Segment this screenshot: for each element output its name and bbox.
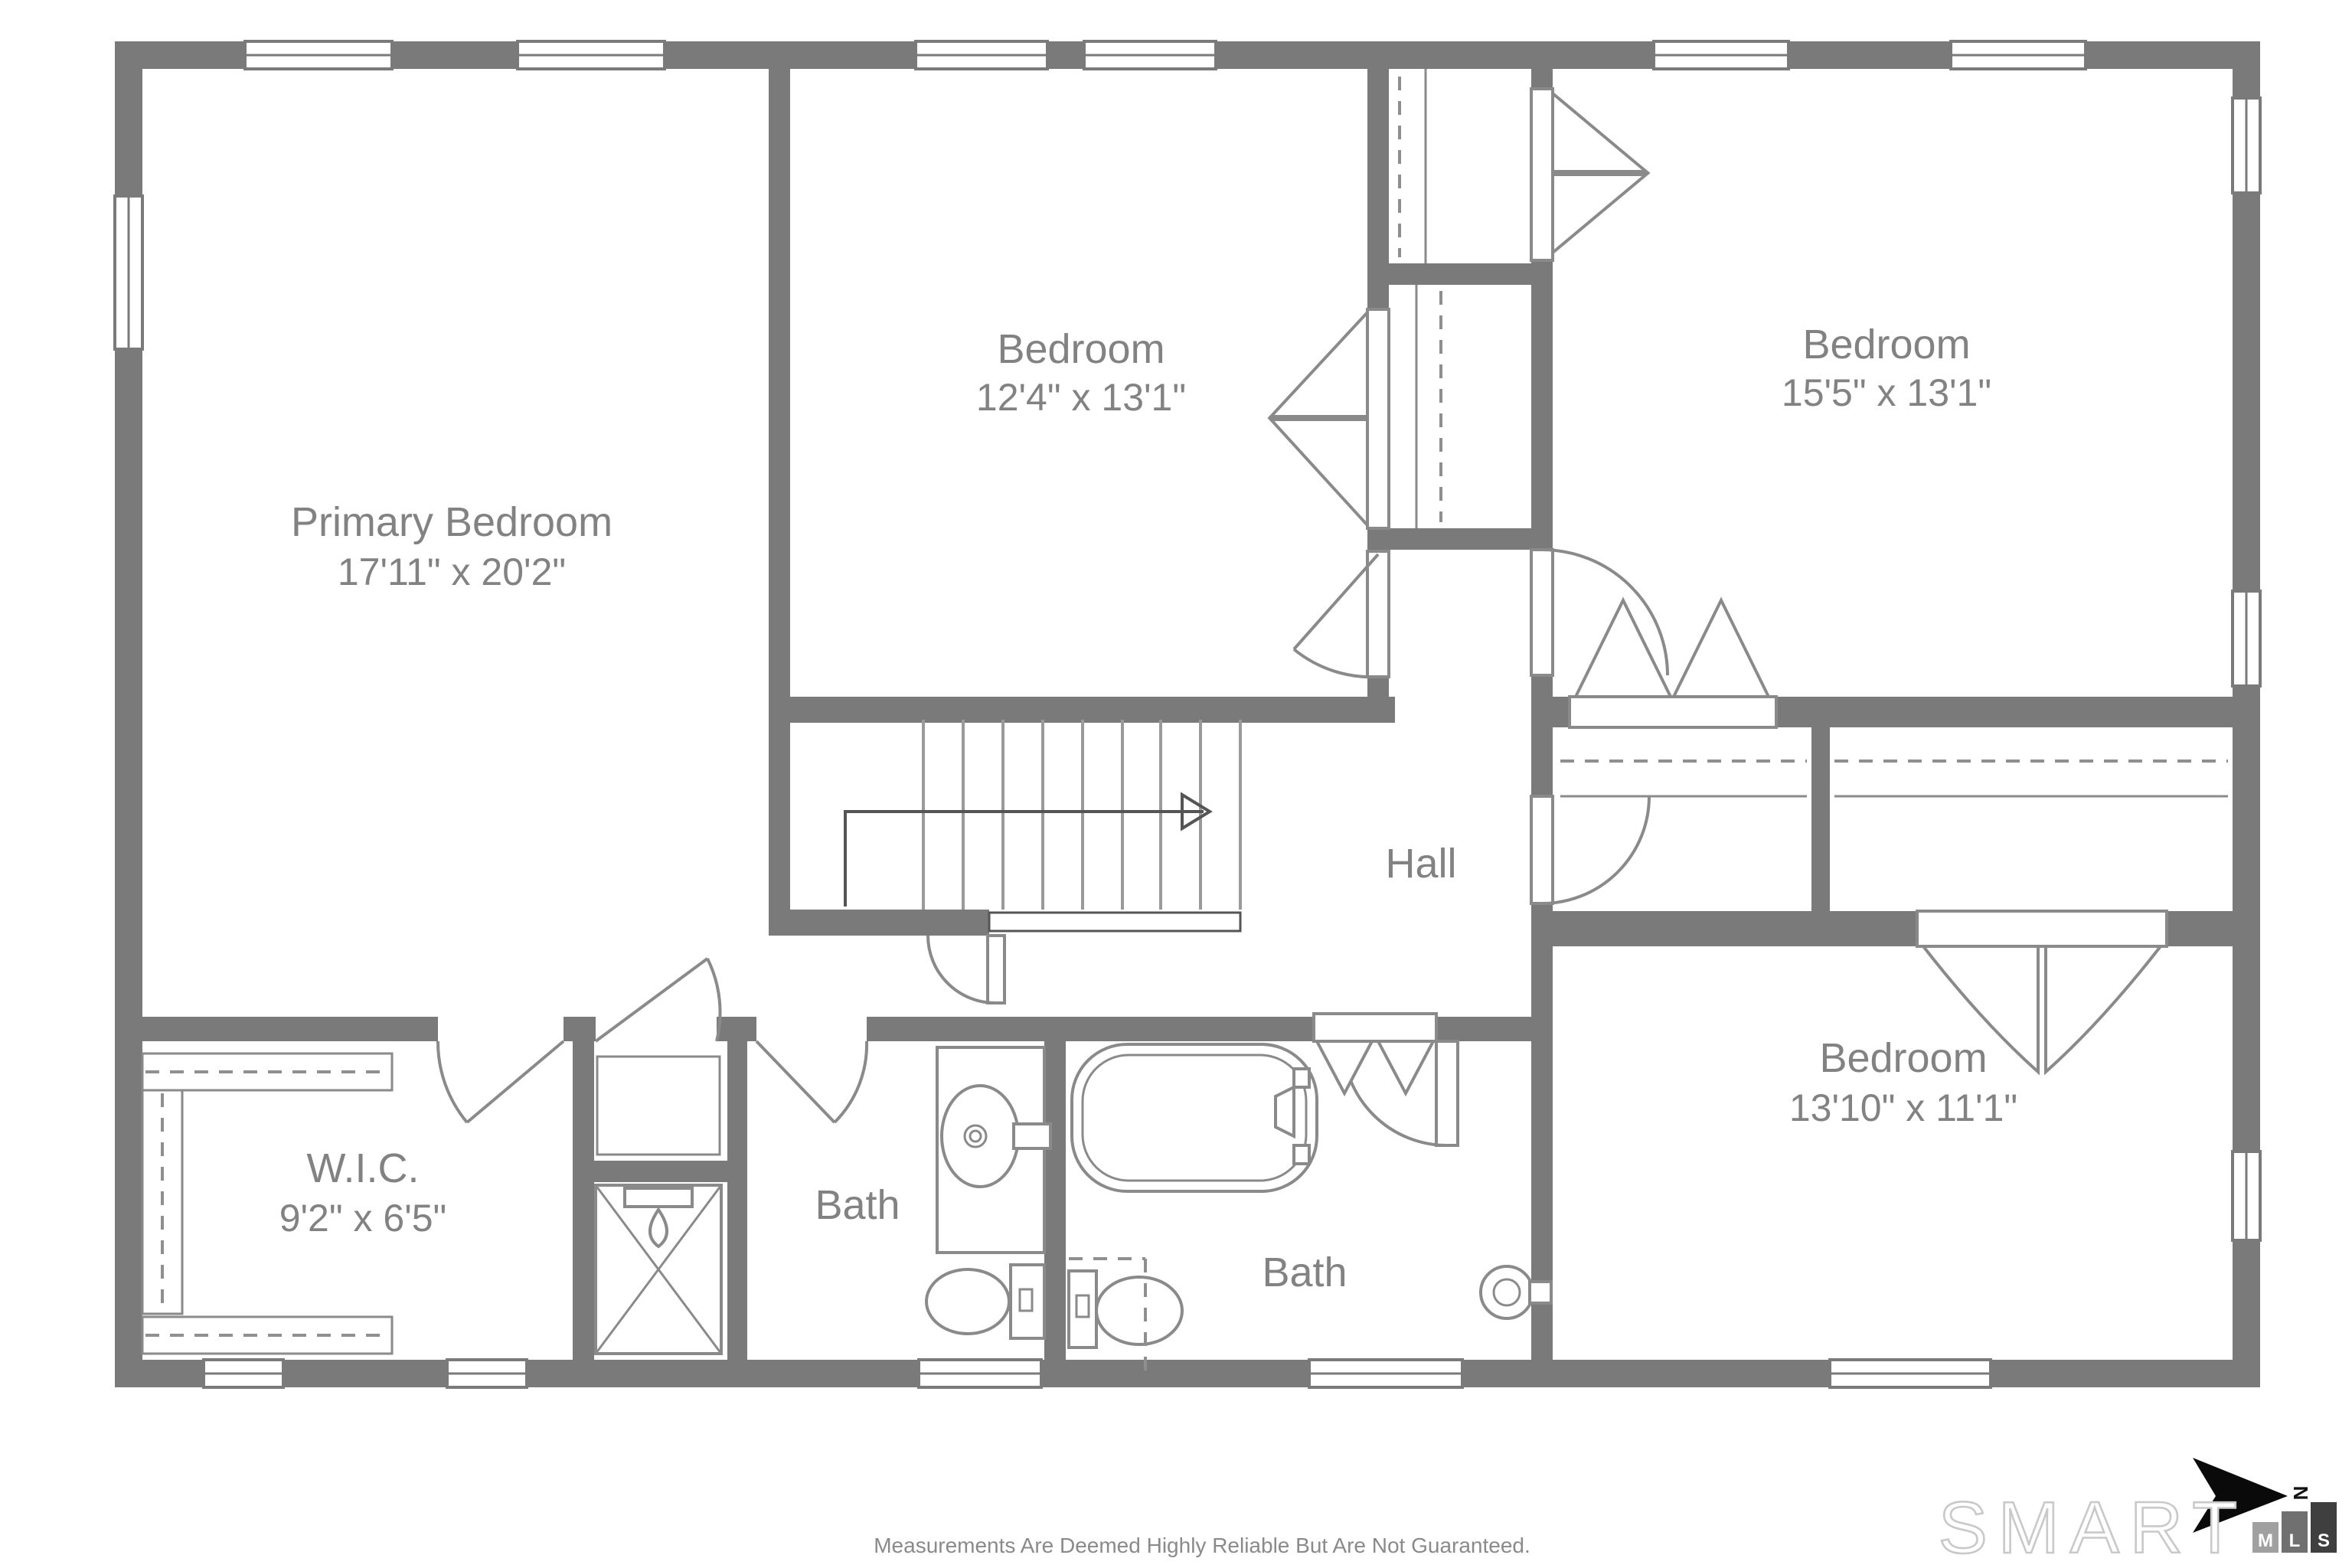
logo-brand-text: SMART (1939, 1487, 2248, 1568)
wall-bedroom3-bottom-bit (1553, 697, 1570, 727)
wall-closetrow-bottom-a (1553, 911, 1917, 946)
label-primary-bedroom: Primary Bedroom (291, 499, 612, 545)
door-bedroom2 (1294, 551, 1389, 677)
staircase (845, 720, 1240, 931)
logo-letter-m: M (2258, 1530, 2273, 1551)
wall-column-mid (1367, 263, 1553, 285)
window (2233, 98, 2260, 193)
wall-band-a (142, 1017, 438, 1041)
label-bedroom2-dims: 12'4" x 13'1" (976, 376, 1186, 419)
window (1654, 41, 1788, 69)
bathtub-icon (1072, 1044, 1317, 1191)
stair-direction-arrow (845, 812, 1204, 906)
door-linen-closet (596, 959, 720, 1041)
wall-stairs-bottom (769, 910, 989, 936)
label-bedroom4: Bedroom (1819, 1035, 1987, 1081)
smartmls-logo: N SMART M L S (1939, 1458, 2337, 1568)
wall-primary-right (769, 69, 790, 910)
window (2233, 1151, 2260, 1240)
wall-bedroom2-door-stub (1367, 677, 1389, 697)
label-wic-dims: 9'2" x 6'5" (279, 1197, 447, 1240)
vanity-sink-left-icon (937, 1047, 1050, 1253)
wall-column-bottom (1367, 528, 1553, 550)
window (2233, 591, 2260, 686)
wall-closetrow-bottom-b (2167, 911, 2233, 946)
shower-icon (596, 1185, 721, 1354)
wall-bedroom3-bottom (1776, 697, 2233, 727)
toilet-left-icon (926, 1265, 1044, 1338)
label-bedroom3: Bedroom (1802, 322, 1970, 367)
wall-hall-right-b (1531, 675, 1553, 796)
label-bath-right: Bath (1262, 1249, 1347, 1295)
wall-column-right-lower (1531, 260, 1553, 528)
wall-hall-right-a (1531, 528, 1553, 550)
window (245, 41, 392, 69)
wall-hall-south-right (1436, 1017, 1531, 1041)
closet-interiors (1400, 69, 2228, 796)
floor-plan: Primary Bedroom 17'11" x 20'2" Bedroom 1… (0, 0, 2352, 1568)
door-hall-stairs (928, 936, 1004, 1003)
door-bath-left (756, 1041, 867, 1122)
doors (438, 89, 2167, 1145)
window (447, 1360, 527, 1387)
window (1309, 1360, 1462, 1387)
window (1084, 41, 1216, 69)
bifold-tub-alcove (1314, 1014, 1436, 1093)
label-hall: Hall (1385, 841, 1456, 887)
wall-hall-south-left (1066, 1017, 1314, 1041)
window (916, 41, 1047, 69)
wall-closet-shower-divider (590, 1161, 727, 1182)
label-bedroom3-dims: 15'5" x 13'1" (1782, 371, 1991, 414)
door-hall-closet (1531, 796, 1649, 903)
label-bath-left: Bath (815, 1182, 900, 1228)
north-label: N (2289, 1486, 2312, 1501)
door-wic (438, 1041, 563, 1122)
wall-wic-right (573, 1041, 594, 1360)
logo-letter-l: L (2289, 1530, 2301, 1551)
bifold-bedroom3-closet (1570, 600, 1776, 727)
window (115, 196, 142, 349)
linen-closet-interior (597, 1057, 720, 1155)
window (1951, 41, 2086, 69)
disclaimer-text: Measurements Are Deemed Highly Reliable … (874, 1534, 1530, 1557)
wall-bath-top (867, 1017, 1066, 1041)
wall-closetcol-right (727, 1041, 747, 1360)
bifold-closet1 (1531, 89, 1646, 260)
window (518, 41, 665, 69)
label-primary-bedroom-dims: 17'11" x 20'2" (338, 550, 566, 593)
bifold-closet2 (1271, 309, 1389, 528)
wall-closetrow-mid (1811, 727, 1830, 911)
stair-railing (989, 913, 1240, 931)
window (1830, 1360, 1991, 1387)
wall-column-right-top (1531, 69, 1553, 89)
logo-letter-s: S (2318, 1530, 2330, 1551)
wall-baths-divider (1044, 1017, 1066, 1360)
label-bedroom4-dims: 13'10" x 11'1" (1789, 1086, 2017, 1129)
window (919, 1360, 1041, 1387)
wall-band-b (563, 1017, 596, 1041)
label-bedroom2: Bedroom (997, 326, 1165, 372)
label-wic: W.I.C. (307, 1145, 420, 1191)
wall-bedroom2-bottom (769, 697, 1395, 723)
window (204, 1360, 283, 1387)
toilet-right-icon (1069, 1259, 1182, 1375)
wall-band-c (717, 1017, 756, 1041)
